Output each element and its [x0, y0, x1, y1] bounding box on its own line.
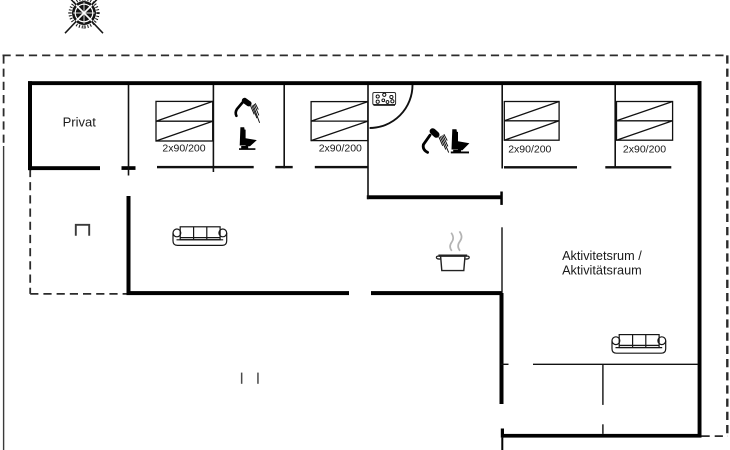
svg-text:Aktivitätsraum: Aktivitätsraum — [562, 264, 642, 278]
svg-text:Aktivitetsrum /: Aktivitetsrum / — [562, 249, 642, 263]
svg-text:2x90/200: 2x90/200 — [319, 142, 362, 154]
svg-text:2x90/200: 2x90/200 — [162, 142, 205, 154]
svg-text:2x90/200: 2x90/200 — [508, 144, 551, 156]
svg-text:Privat: Privat — [63, 115, 97, 130]
svg-text:2x90/200: 2x90/200 — [623, 144, 666, 156]
